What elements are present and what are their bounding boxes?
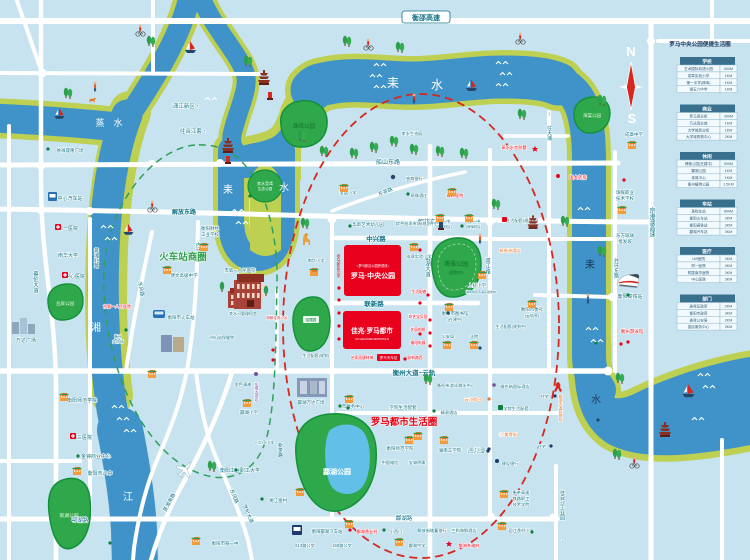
svg-text:衡州植物公园: 衡州植物公园 bbox=[688, 182, 710, 187]
svg-text:(在建中): (在建中) bbox=[448, 316, 463, 322]
svg-text:国大药房: 国大药房 bbox=[569, 174, 587, 181]
svg-text:解放东路: 解放东路 bbox=[172, 208, 197, 216]
svg-text:海棠公园: 海棠公园 bbox=[583, 112, 601, 119]
svg-text:S: S bbox=[628, 111, 637, 126]
svg-text:罗马中央公园便捷生活圈: 罗马中央公园便捷生活圈 bbox=[669, 40, 731, 48]
svg-text:衡阳市火车站: 衡阳市火车站 bbox=[168, 314, 195, 321]
svg-text:博雅公园: 博雅公园 bbox=[444, 260, 468, 268]
svg-text:技术学院: 技术学院 bbox=[513, 501, 531, 508]
svg-text:湖南工学院: 湖南工学院 bbox=[439, 447, 462, 454]
svg-text:169医院: 169医院 bbox=[692, 256, 706, 261]
svg-text:衡阳市政府: 衡阳市政府 bbox=[690, 310, 708, 315]
svg-text:罗马·中央公园: 罗马·中央公园 bbox=[351, 271, 395, 280]
svg-text:东方玻璃: 东方玻璃 bbox=[616, 232, 634, 239]
svg-text:鄂湖路: 鄂湖路 bbox=[72, 516, 89, 524]
svg-text:衡阳高铁站: 衡阳高铁站 bbox=[617, 293, 642, 300]
svg-text:附属南华医院: 附属南华医院 bbox=[688, 270, 710, 275]
svg-text:酃湖渔业村: 酃湖渔业村 bbox=[357, 528, 379, 535]
svg-text:珠晖公园: 珠晖公园 bbox=[293, 122, 316, 130]
svg-text:衡阳师范学院: 衡阳师范学院 bbox=[387, 445, 414, 452]
svg-text:金色潇湘: 金色潇湘 bbox=[235, 381, 252, 388]
svg-text:衡阳火车站: 衡阳火车站 bbox=[690, 215, 708, 220]
svg-text:蒸湘北路: 蒸湘北路 bbox=[93, 247, 99, 269]
svg-text:JIAYUAN ROME METROPOLIS: JIAYUAN ROME METROPOLIS bbox=[355, 338, 389, 341]
svg-text:艺辰相框: 艺辰相框 bbox=[410, 327, 425, 332]
svg-text:耒水河管理宿舍: 耒水河管理宿舍 bbox=[229, 310, 257, 316]
svg-text:2KM: 2KM bbox=[725, 318, 732, 322]
svg-text:艺术国际双语小园: 艺术国际双语小园 bbox=[684, 66, 713, 71]
svg-text:3KM: 3KM bbox=[725, 278, 732, 282]
svg-text:衡阳市铁一中: 衡阳市铁一中 bbox=[212, 540, 239, 547]
svg-text:珠晖区政府: 珠晖区政府 bbox=[690, 304, 708, 309]
svg-text:南华大学: 南华大学 bbox=[58, 252, 78, 259]
svg-text:博雅公园(在建中): 博雅公园(在建中) bbox=[685, 161, 713, 166]
svg-text:水: 水 bbox=[279, 182, 289, 194]
svg-text:蒸水水恋别墅: 蒸水水恋别墅 bbox=[501, 144, 526, 151]
svg-text:工业学校: 工业学校 bbox=[201, 231, 219, 238]
svg-text:维也纳国际酒店: 维也纳国际酒店 bbox=[500, 383, 529, 390]
svg-text:酃湖中学: 酃湖中学 bbox=[409, 542, 426, 549]
svg-text:住宅: 住宅 bbox=[541, 393, 549, 399]
svg-text:3KM: 3KM bbox=[725, 216, 732, 220]
svg-text:福阳电器: 福阳电器 bbox=[410, 340, 425, 345]
svg-text:↑: ↑ bbox=[548, 112, 551, 118]
svg-text:水: 水 bbox=[591, 394, 601, 406]
svg-text:水: 水 bbox=[431, 78, 443, 92]
svg-text:衡州游泳馆: 衡州游泳馆 bbox=[621, 328, 644, 335]
svg-text:农商银行: 农商银行 bbox=[406, 175, 423, 182]
svg-text:外环东路: 外环东路 bbox=[613, 257, 619, 279]
svg-text:体育中心: 体育中心 bbox=[691, 175, 706, 180]
svg-text:酃湖小学: 酃湖小学 bbox=[240, 409, 258, 416]
svg-text:中心医院: 中心医院 bbox=[691, 277, 706, 282]
svg-text:衡阳工业职工大学: 衡阳工业职工大学 bbox=[220, 467, 260, 474]
svg-text:金钟商业中心: 金钟商业中心 bbox=[81, 453, 111, 460]
svg-text:技术学校: 技术学校 bbox=[616, 195, 634, 202]
svg-text:三和海鲜酒店: 三和海鲜酒店 bbox=[451, 527, 476, 534]
svg-text:(规划中): (规划中) bbox=[449, 269, 464, 275]
svg-text:耒: 耒 bbox=[223, 184, 233, 196]
svg-text:·（罗马新区公园旁颂邸）·: ·（罗马新区公园旁颂邸）· bbox=[356, 263, 390, 268]
svg-text:3KM: 3KM bbox=[725, 223, 732, 227]
svg-text:酃湖公园: 酃湖公园 bbox=[323, 467, 351, 476]
svg-text:酃湖公园: 酃湖公园 bbox=[691, 168, 706, 173]
svg-text:新香洲酒店: 新香洲酒店 bbox=[500, 247, 521, 254]
svg-text:学校: 学校 bbox=[702, 58, 712, 65]
svg-text:中心汽车站: 中心汽车站 bbox=[57, 195, 82, 202]
svg-text:1KM: 1KM bbox=[725, 128, 732, 132]
svg-text:衡州: 衡州 bbox=[114, 334, 122, 339]
svg-text:湘: 湘 bbox=[91, 321, 101, 334]
svg-text:300M: 300M bbox=[724, 115, 733, 119]
svg-text:船山东路: 船山东路 bbox=[376, 158, 400, 166]
svg-text:酃湖汽车站: 酃湖汽车站 bbox=[690, 229, 708, 234]
svg-text:往自沙工业园: 往自沙工业园 bbox=[559, 489, 565, 521]
svg-text:生活配套(规划中): 生活配套(规划中) bbox=[496, 323, 527, 329]
svg-text:万达广场: 万达广场 bbox=[16, 337, 36, 344]
svg-text:衡茶高速: 衡茶高速 bbox=[513, 489, 531, 496]
svg-text:市政务中心: 市政务中心 bbox=[342, 403, 365, 410]
svg-text:住宅: 住宅 bbox=[538, 443, 546, 449]
svg-text:罗马新区小学: 罗马新区小学 bbox=[336, 255, 341, 278]
svg-text:衡阳师范学院: 衡阳师范学院 bbox=[67, 397, 97, 404]
svg-text:珠晖车站: 珠晖车站 bbox=[691, 209, 706, 214]
svg-text:珠晖职业: 珠晖职业 bbox=[616, 189, 634, 196]
svg-text:车站: 车站 bbox=[702, 201, 712, 208]
svg-text:3KM: 3KM bbox=[725, 264, 732, 268]
svg-text:医疗: 医疗 bbox=[702, 248, 712, 255]
svg-text:联新路西: 联新路西 bbox=[407, 355, 422, 360]
svg-text:1KM: 1KM bbox=[725, 176, 732, 180]
svg-text:珉珠酒庄: 珉珠酒庄 bbox=[411, 192, 428, 199]
svg-text:湖五六中学: 湖五六中学 bbox=[690, 87, 708, 92]
svg-text:苗圃园: 苗圃园 bbox=[306, 317, 317, 322]
svg-text:3KM: 3KM bbox=[725, 271, 732, 275]
svg-text:(珠晖校区): (珠晖校区) bbox=[466, 224, 482, 229]
svg-text:613路公交: 613路公交 bbox=[295, 542, 315, 549]
svg-text:酃湖乡政府: 酃湖乡政府 bbox=[459, 542, 480, 549]
svg-text:生活配套: 生活配套 bbox=[411, 289, 426, 294]
svg-text:铁路职工: 铁路职工 bbox=[513, 495, 530, 502]
svg-text:附一医院: 附一医院 bbox=[691, 263, 706, 268]
svg-text:休闲: 休闲 bbox=[701, 153, 712, 160]
svg-text:2KM: 2KM bbox=[725, 305, 732, 309]
svg-text:500M: 500M bbox=[724, 162, 733, 166]
svg-text:耒: 耒 bbox=[387, 76, 399, 90]
svg-text:3KM: 3KM bbox=[725, 311, 732, 315]
svg-text:商业: 商业 bbox=[702, 106, 712, 113]
svg-text:生活配套(规划): 生活配套(规划) bbox=[303, 352, 330, 358]
svg-text:依祥晟隆广场: 依祥晟隆广场 bbox=[57, 147, 84, 154]
svg-text:1KM: 1KM bbox=[725, 88, 732, 92]
svg-text:万达商业城: 万达商业城 bbox=[690, 120, 708, 125]
svg-text:蔡伦大道: 蔡伦大道 bbox=[32, 270, 39, 295]
svg-text:洄江渔村小学: 洄江渔村小学 bbox=[508, 527, 533, 534]
svg-text:一二〇小学: 一二〇小学 bbox=[254, 439, 275, 446]
svg-text:往大浦: 往大浦 bbox=[546, 125, 552, 142]
svg-text:联新路: 联新路 bbox=[364, 299, 384, 308]
svg-text:南华小学: 南华小学 bbox=[308, 257, 325, 264]
svg-text:3KM: 3KM bbox=[725, 257, 732, 261]
svg-text:酃湖路: 酃湖路 bbox=[396, 514, 413, 522]
svg-text:部门: 部门 bbox=[702, 296, 712, 303]
svg-text:艺家居建材城: 艺家居建材城 bbox=[351, 355, 374, 360]
svg-text:罗马商业街: 罗马商业街 bbox=[690, 114, 708, 119]
svg-text:解放街储蓄银行: 解放街储蓄银行 bbox=[417, 527, 446, 534]
svg-text:京港澳高速: 京港澳高速 bbox=[648, 206, 655, 238]
svg-text:罗马都市生活圈: 罗马都市生活圈 bbox=[371, 416, 438, 428]
svg-text:珠晖公安局: 珠晖公安局 bbox=[690, 317, 708, 322]
svg-text:水: 水 bbox=[113, 117, 122, 128]
svg-text:博文高级中学: 博文高级中学 bbox=[171, 272, 198, 279]
svg-text:市妇幼保健院: 市妇幼保健院 bbox=[210, 334, 234, 340]
svg-text:建设银行: 建设银行 bbox=[502, 460, 519, 467]
svg-text:市第一人民医院: 市第一人民医院 bbox=[103, 303, 131, 309]
svg-text:168路公交: 168路公交 bbox=[332, 542, 352, 549]
svg-text:玖艺宝贝园: 玖艺宝贝园 bbox=[409, 314, 428, 319]
svg-text:1.5KM: 1.5KM bbox=[723, 183, 733, 187]
svg-text:综合批发市场(规划中): 综合批发市场(规划中) bbox=[396, 220, 437, 227]
svg-text:生态公园: 生态公园 bbox=[258, 186, 273, 191]
svg-text:① 美食街: ① 美食街 bbox=[499, 431, 517, 438]
svg-text:华新艺术幼儿园: 华新艺术幼儿园 bbox=[352, 221, 384, 228]
svg-text:成章实验小学: 成章实验小学 bbox=[406, 253, 431, 260]
svg-text:云沙假日: 云沙假日 bbox=[465, 396, 482, 403]
svg-text:耒水竞鸢: 耒水竞鸢 bbox=[257, 180, 273, 186]
svg-text:1KM: 1KM bbox=[725, 169, 732, 173]
svg-text:中国电信: 中国电信 bbox=[382, 459, 399, 466]
svg-text:火车站商圈: 火车站商圈 bbox=[159, 251, 207, 263]
svg-text:(云轨亭): (云轨亭) bbox=[525, 312, 540, 318]
svg-text:大市场: 大市场 bbox=[112, 339, 124, 344]
svg-text:小西门: 小西门 bbox=[390, 528, 403, 535]
svg-text:湘江渔村: 湘江渔村 bbox=[269, 497, 287, 504]
svg-text:法院: 法院 bbox=[470, 333, 479, 340]
svg-text:潇江新区 ↑: 潇江新区 ↑ bbox=[173, 102, 200, 110]
svg-text:衡阳财经: 衡阳财经 bbox=[201, 225, 219, 232]
svg-text:市第一人民医院: 市第一人民医院 bbox=[224, 267, 256, 274]
svg-text:800M: 800M bbox=[724, 210, 733, 214]
svg-text:岳屏公园: 岳屏公园 bbox=[56, 300, 74, 307]
svg-text:宝湖明珠: 宝湖明珠 bbox=[409, 459, 427, 466]
svg-text:3KM: 3KM bbox=[725, 230, 732, 234]
svg-text:酃湖万达广场: 酃湖万达广场 bbox=[298, 399, 325, 406]
svg-text:学院生活配套: 学院生活配套 bbox=[390, 404, 417, 411]
svg-text:衡邵高速: 衡邵高速 bbox=[411, 13, 440, 22]
svg-text:耒: 耒 bbox=[585, 259, 595, 271]
svg-text:成章实验小学: 成章实验小学 bbox=[688, 73, 710, 78]
svg-text:衡阳高铁站: 衡阳高铁站 bbox=[690, 222, 708, 227]
svg-text:润江公园: 润江公园 bbox=[469, 446, 485, 452]
svg-text:衡阳酃湖汽车站: 衡阳酃湖汽车站 bbox=[312, 528, 343, 535]
svg-text:酃湖大道延伸段: 酃湖大道延伸段 bbox=[558, 394, 563, 422]
svg-text:大学城商业街: 大学城商业街 bbox=[688, 127, 710, 132]
svg-text:500M: 500M bbox=[724, 67, 733, 71]
svg-text:2KM: 2KM bbox=[725, 135, 732, 139]
svg-text:上托小学: 上托小学 bbox=[468, 282, 486, 289]
svg-text:大学城购物中心: 大学城购物中心 bbox=[686, 134, 712, 139]
svg-text:公安局: 公安局 bbox=[442, 333, 455, 340]
svg-text:耒水生态园: 耒水生态园 bbox=[402, 130, 423, 137]
svg-text:成章中学: 成章中学 bbox=[625, 131, 643, 138]
svg-text:衡阳市图书馆: 衡阳市图书馆 bbox=[442, 310, 469, 317]
svg-text:第一中学(珠晖): 第一中学(珠晖) bbox=[687, 80, 711, 85]
svg-text:往合江套 ↑: 往合江套 ↑ bbox=[180, 127, 207, 135]
svg-text:蒸: 蒸 bbox=[95, 117, 104, 128]
svg-text:佳兆·罗马都市: 佳兆·罗马都市 bbox=[351, 326, 393, 335]
svg-text:新茶路: 新茶路 bbox=[277, 442, 283, 459]
svg-text:精湛酒店: 精湛酒店 bbox=[441, 409, 458, 416]
svg-text:↓: ↓ bbox=[561, 539, 564, 545]
svg-text:富民服务中心: 富民服务中心 bbox=[688, 324, 710, 329]
svg-text:1KM: 1KM bbox=[725, 74, 732, 78]
svg-text:N: N bbox=[626, 44, 635, 59]
svg-text:批发城: 批发城 bbox=[618, 238, 632, 245]
svg-text:罗马专车站: 罗马专车站 bbox=[380, 355, 398, 360]
svg-text:衡阳市八中: 衡阳市八中 bbox=[87, 470, 112, 477]
svg-text:1KM: 1KM bbox=[725, 121, 732, 125]
svg-text:学院生活配套: 学院生活配套 bbox=[503, 405, 529, 412]
svg-text:衡阳市游泳跳水中心: 衡阳市游泳跳水中心 bbox=[437, 382, 476, 389]
svg-text:湖南财富双语实验学校: 湖南财富双语实验学校 bbox=[466, 289, 496, 294]
svg-text:1KM: 1KM bbox=[725, 81, 732, 85]
svg-text:东城大酒店: 东城大酒店 bbox=[254, 382, 259, 402]
svg-text:中兴路: 中兴路 bbox=[366, 234, 386, 243]
svg-text:湘陵佳苑小区: 湘陵佳苑小区 bbox=[266, 315, 288, 320]
svg-text:3KM: 3KM bbox=[725, 325, 732, 329]
svg-text:江: 江 bbox=[123, 491, 133, 503]
